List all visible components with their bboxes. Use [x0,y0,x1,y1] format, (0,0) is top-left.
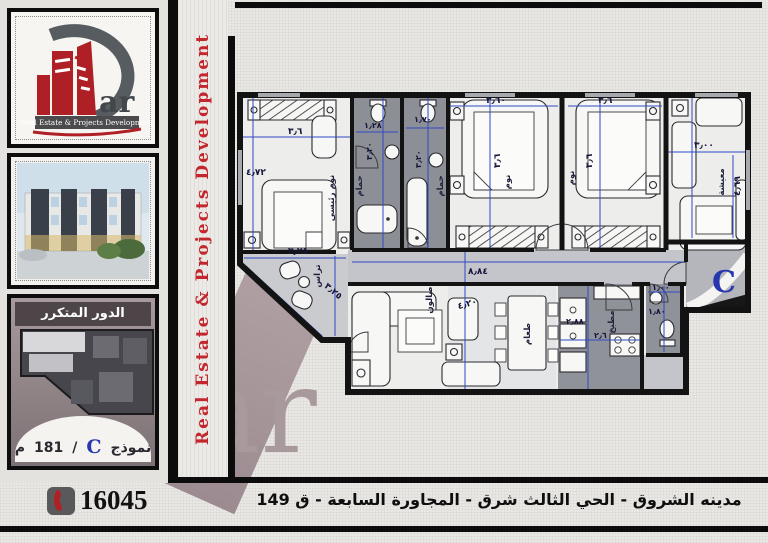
dim-bed2-w: ٣٫٦٠ [486,96,506,106]
top-rule [235,2,762,8]
floor-plan: C [232,88,754,398]
phone-icon [46,486,76,516]
footer-rule-bottom [0,526,768,532]
dim-bath2-h: ٣٫٢٠ [414,150,423,168]
model-label: نموذج [111,440,152,456]
bush [97,243,121,259]
flyer-page: ar ar Real Estate & Proj [0,0,768,543]
logo-banner-text: Real Estate & Projects Development [21,118,154,127]
dim-bath2-w: ١٫٧٠ [414,115,432,124]
label-salon: صالون [425,286,435,313]
vertical-brand-text: Real Estate & Projects Development [178,6,228,471]
logo-underline [33,129,141,135]
dim-bed3-w: ٣٫٦ [598,96,613,106]
model-line: نموذج C / 181 م [11,440,155,456]
label-terrace: تراس [313,264,323,287]
address-line: مدينه الشروق - الحي الثالث شرق - المجاور… [240,490,758,509]
label-master: نوم رئيسي [327,175,337,222]
vertical-text-strip: Real Estate & Projects Development [178,0,228,477]
label-bed2: نوم [503,175,513,190]
model-separator: / [72,440,77,456]
area-unit: م [15,440,25,456]
divider-bar-left [168,0,178,483]
dim-salon-w: ٨٫٨٤ [468,267,488,277]
footer: 16045 مدينه الشروق - الحي الثالث شرق - ا… [0,483,768,526]
dim-wc-h: ١٫٨٠ [648,307,666,316]
dim-terrace-a: ٣٫٢٥ [288,247,308,257]
dim-kitchen-h: ٢٫٦ [594,331,607,340]
phone-number: 16045 [80,485,148,516]
dar-logo: ar Real Estate & Projects Development [11,12,155,144]
dim-living-h: ٤٫٦٩ [733,176,743,196]
building-render [17,163,149,279]
dim-kitchen-w: ٢٫٨٨ [566,317,584,326]
model-letter: C [86,440,101,456]
label-kitchen: مطبخ [607,310,617,333]
road [19,249,47,261]
dim-wc-w: ١٫٠٠ [652,283,670,292]
plan-c-marker: C [712,265,736,300]
dim-bath1-h: ٣٫٢٠ [365,142,374,160]
floor-thumbnail [15,328,159,424]
label-bed3: نوم [567,171,577,186]
dim-bed3-h: ٣٫٦ [585,153,595,168]
label-living: معيشة [717,168,727,195]
floor-thumbnail-panel: الدور المتكرر نموذج C / 181 م [7,294,159,470]
entry-floor [644,355,686,392]
bed2-wardrobe [456,226,548,248]
logo-ar-text: ar [99,85,135,120]
sidebar: ar Real Estate & Projects Development [0,0,168,483]
building-photo-panel [7,153,159,289]
logo-panel: ar Real Estate & Projects Development [7,8,159,148]
corridor-floor [348,250,686,284]
dim-bed2-h: ٣٫٦ [493,153,503,168]
dim-master-h: ٤٫٧٢ [246,168,266,178]
dim-bath1-w: ١٫٢٨ [364,121,382,130]
area-value: 181 [34,440,63,456]
label-bath1: حمام [355,175,365,196]
label-bath2: حمام [436,175,446,196]
floor-panel-title: الدور المتكرر [15,302,151,326]
divider-bar-right [228,36,235,483]
footer-rule-top [178,477,768,483]
dim-living-w: ٣٫٠٠ [694,141,714,151]
dim-master-w: ٣٫٦ [288,127,303,137]
label-dining: طعام [523,323,533,345]
logo-building [37,41,96,115]
